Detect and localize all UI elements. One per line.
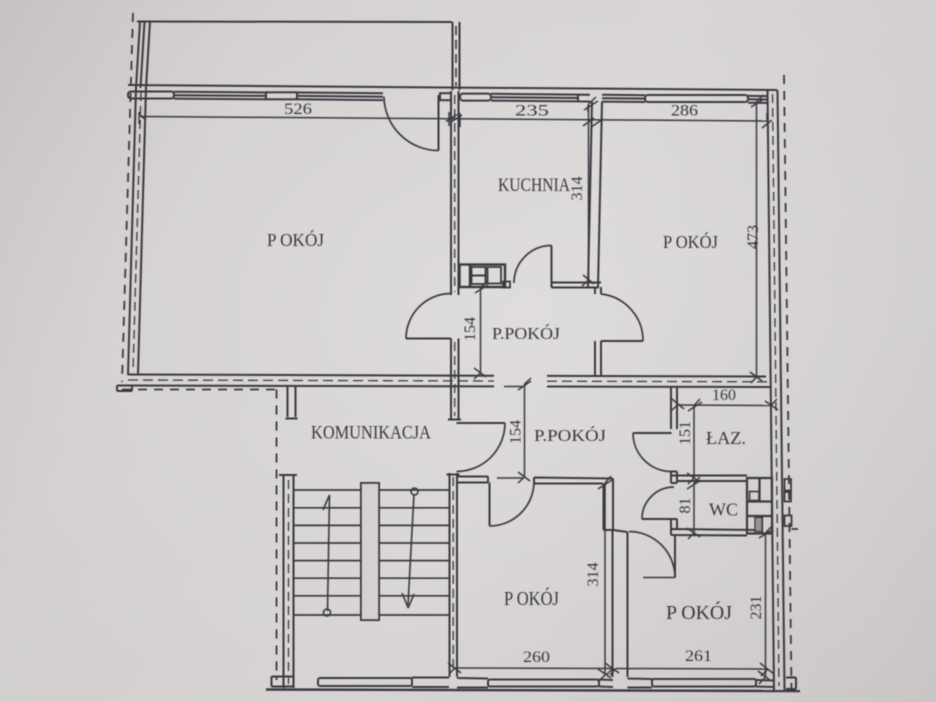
svg-text:P OKÓJ: P OKÓJ: [267, 229, 324, 250]
svg-text:314: 314: [569, 177, 586, 201]
svg-text:P OKÓJ: P OKÓJ: [504, 586, 559, 610]
svg-text:261: 261: [685, 648, 712, 665]
svg-text:81: 81: [677, 498, 694, 514]
svg-text:260: 260: [523, 649, 550, 666]
svg-text:KUCHNIA: KUCHNIA: [498, 175, 570, 196]
svg-text:160: 160: [712, 387, 736, 404]
svg-text:154: 154: [508, 420, 525, 444]
svg-text:P.POKÓJ: P.POKÓJ: [492, 324, 560, 343]
svg-text:154: 154: [462, 317, 479, 341]
svg-text:KOMUNIKACJA: KOMUNIKACJA: [311, 423, 431, 444]
svg-text:ŁAZ.: ŁAZ.: [706, 428, 746, 448]
svg-text:526: 526: [284, 101, 312, 118]
svg-text:151: 151: [677, 421, 694, 445]
svg-text:P OKÓJ: P OKÓJ: [663, 231, 718, 252]
svg-text:P.POKÓJ: P.POKÓJ: [534, 426, 606, 445]
svg-text:473: 473: [745, 225, 762, 249]
svg-text:314: 314: [585, 563, 602, 587]
svg-text:WC: WC: [709, 500, 738, 520]
svg-text:P OKÓJ: P OKÓJ: [666, 600, 732, 624]
svg-text:231: 231: [748, 596, 765, 620]
svg-text:286: 286: [671, 103, 698, 120]
svg-text:235: 235: [515, 103, 549, 120]
